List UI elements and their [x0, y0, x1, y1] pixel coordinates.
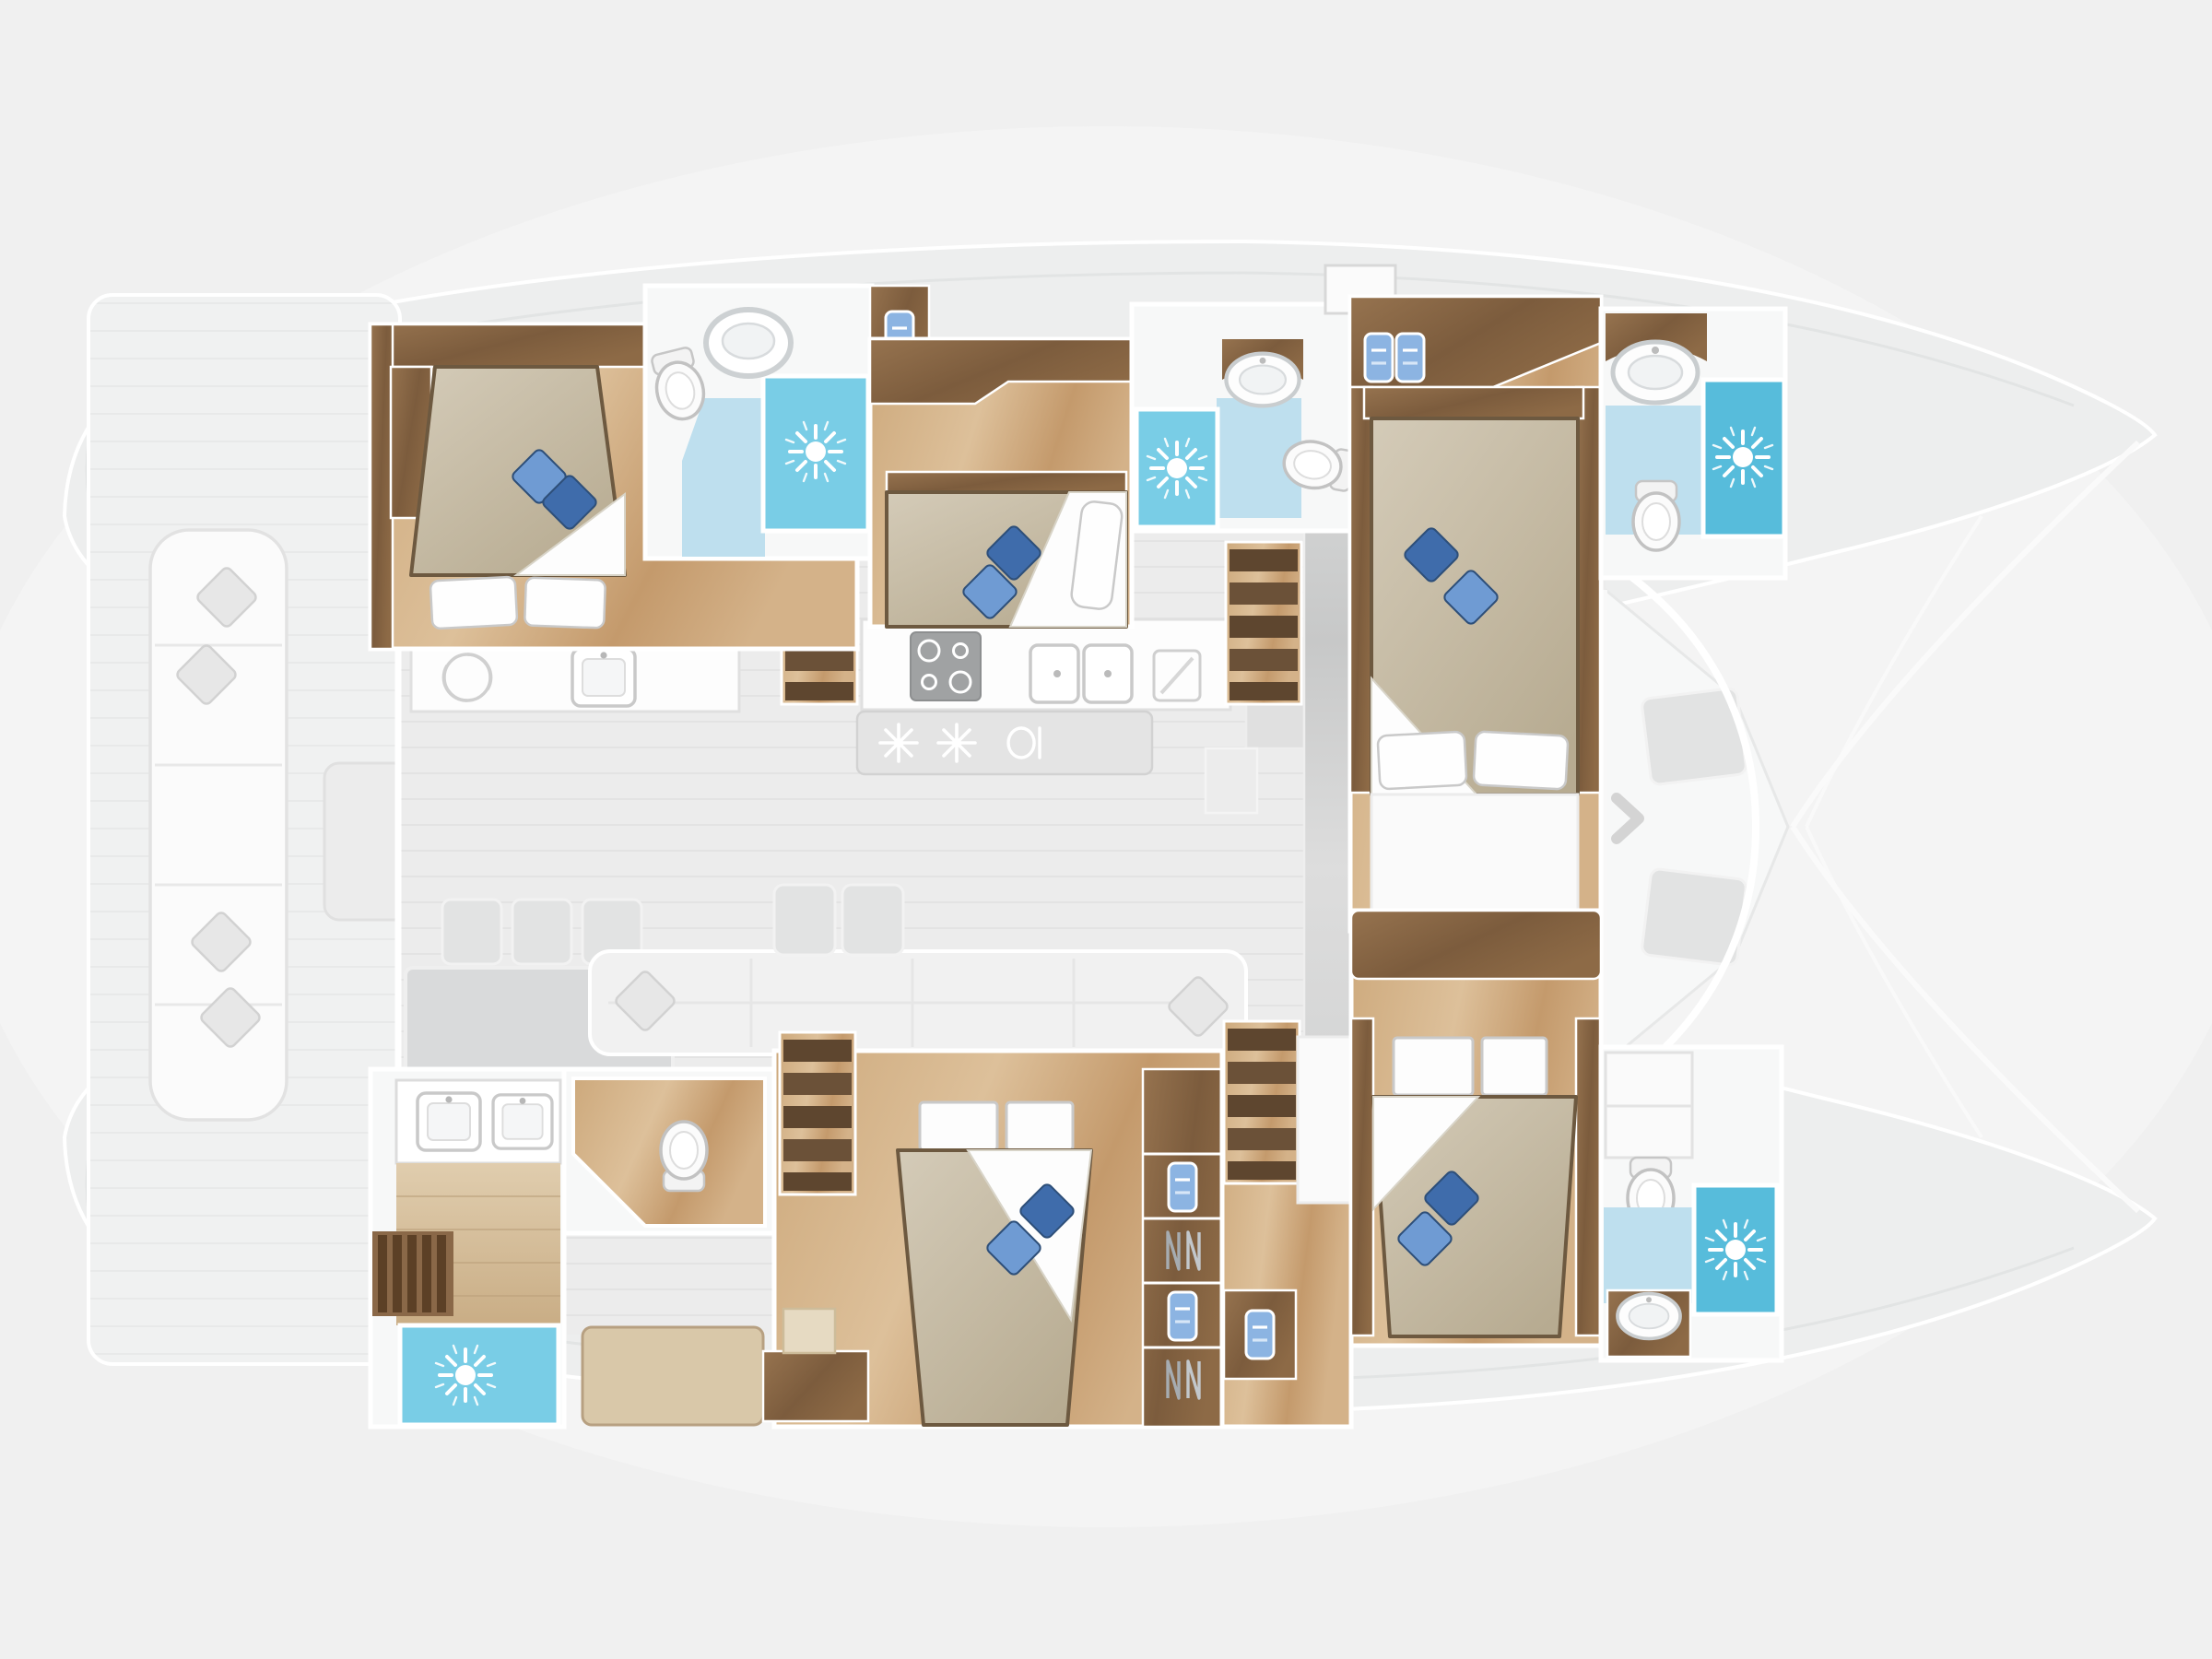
- dining-chair: [512, 900, 571, 964]
- headboard-window: [1482, 1038, 1547, 1095]
- pillar: [1298, 1037, 1351, 1203]
- cabin-port-fwd: [1350, 297, 1601, 931]
- snowflake-icon: [880, 724, 917, 761]
- towel-icon: [1169, 1292, 1196, 1340]
- bed-rail: [1576, 1018, 1600, 1335]
- vanity-desk: [763, 1351, 868, 1421]
- washbasin: [706, 310, 791, 376]
- master-bathroom: [371, 1069, 564, 1427]
- floorplan-canvas: [0, 0, 2212, 1659]
- bed-rail: [1351, 1018, 1373, 1335]
- catamaran-floorplan: [0, 0, 2212, 1659]
- snowflake-icon: [938, 724, 975, 761]
- washbasin: [1613, 342, 1698, 403]
- headboard-window: [1006, 1102, 1073, 1150]
- towel-icon: [1246, 1311, 1274, 1359]
- stool: [783, 1309, 835, 1353]
- aft-cockpit: [88, 295, 417, 1364]
- cabin-starboard-fwd: [1351, 911, 1601, 1346]
- washbasin: [1226, 354, 1299, 406]
- headboard-window: [1394, 1038, 1473, 1095]
- stairs-starboard-fwd: [1224, 1021, 1300, 1183]
- towel-icon: [1169, 1163, 1196, 1211]
- bathroom-port-mid: [1132, 304, 1357, 531]
- wc-room: [564, 1069, 774, 1233]
- salon-sofa: [590, 951, 1246, 1054]
- washbasin: [1618, 1294, 1680, 1339]
- slatted-bench: [372, 1231, 453, 1316]
- bathroom-floor: [1604, 1207, 1692, 1303]
- headboard-window: [920, 1102, 997, 1150]
- towel-icon: [1396, 334, 1424, 382]
- white-pillow: [1474, 731, 1569, 789]
- white-pillow: [524, 578, 606, 629]
- wardrobe-column: [1143, 1069, 1222, 1427]
- cabin-wall: [371, 324, 647, 367]
- toilet: [661, 1122, 707, 1191]
- washbasin: [418, 1093, 480, 1150]
- bed-rail: [887, 472, 1126, 492]
- galley-tall-unit: [1206, 748, 1257, 813]
- dining-chair: [442, 900, 501, 964]
- ottoman: [774, 885, 835, 955]
- starboard-corridor: [1222, 1021, 1351, 1427]
- stairs-starboard-aft: [780, 1032, 855, 1194]
- white-pillow: [430, 577, 518, 629]
- stairs-port-fwd: [1226, 542, 1301, 704]
- prep-sink: [572, 649, 635, 706]
- chaise-bench: [582, 1327, 763, 1425]
- toilet: [1633, 481, 1679, 550]
- white-pillow: [1378, 732, 1467, 790]
- berth-step: [1371, 794, 1578, 925]
- bathroom-starboard-fwd: [1601, 1047, 1782, 1360]
- cooktop: [911, 632, 981, 700]
- washbasin: [493, 1095, 552, 1148]
- bathroom-port-fwd: [1601, 309, 1785, 578]
- ottoman: [842, 885, 903, 955]
- appliance-hatch: [1154, 651, 1200, 700]
- bathroom-port-aft: [645, 286, 872, 559]
- bed-rail: [1350, 387, 1372, 793]
- cabin-wall: [371, 324, 393, 649]
- headboard: [1364, 387, 1583, 418]
- towel-icon: [1365, 334, 1393, 382]
- cold-storage-island: [857, 712, 1152, 774]
- cabin-port-mid: [870, 339, 1132, 627]
- cabin-wall: [1351, 911, 1601, 979]
